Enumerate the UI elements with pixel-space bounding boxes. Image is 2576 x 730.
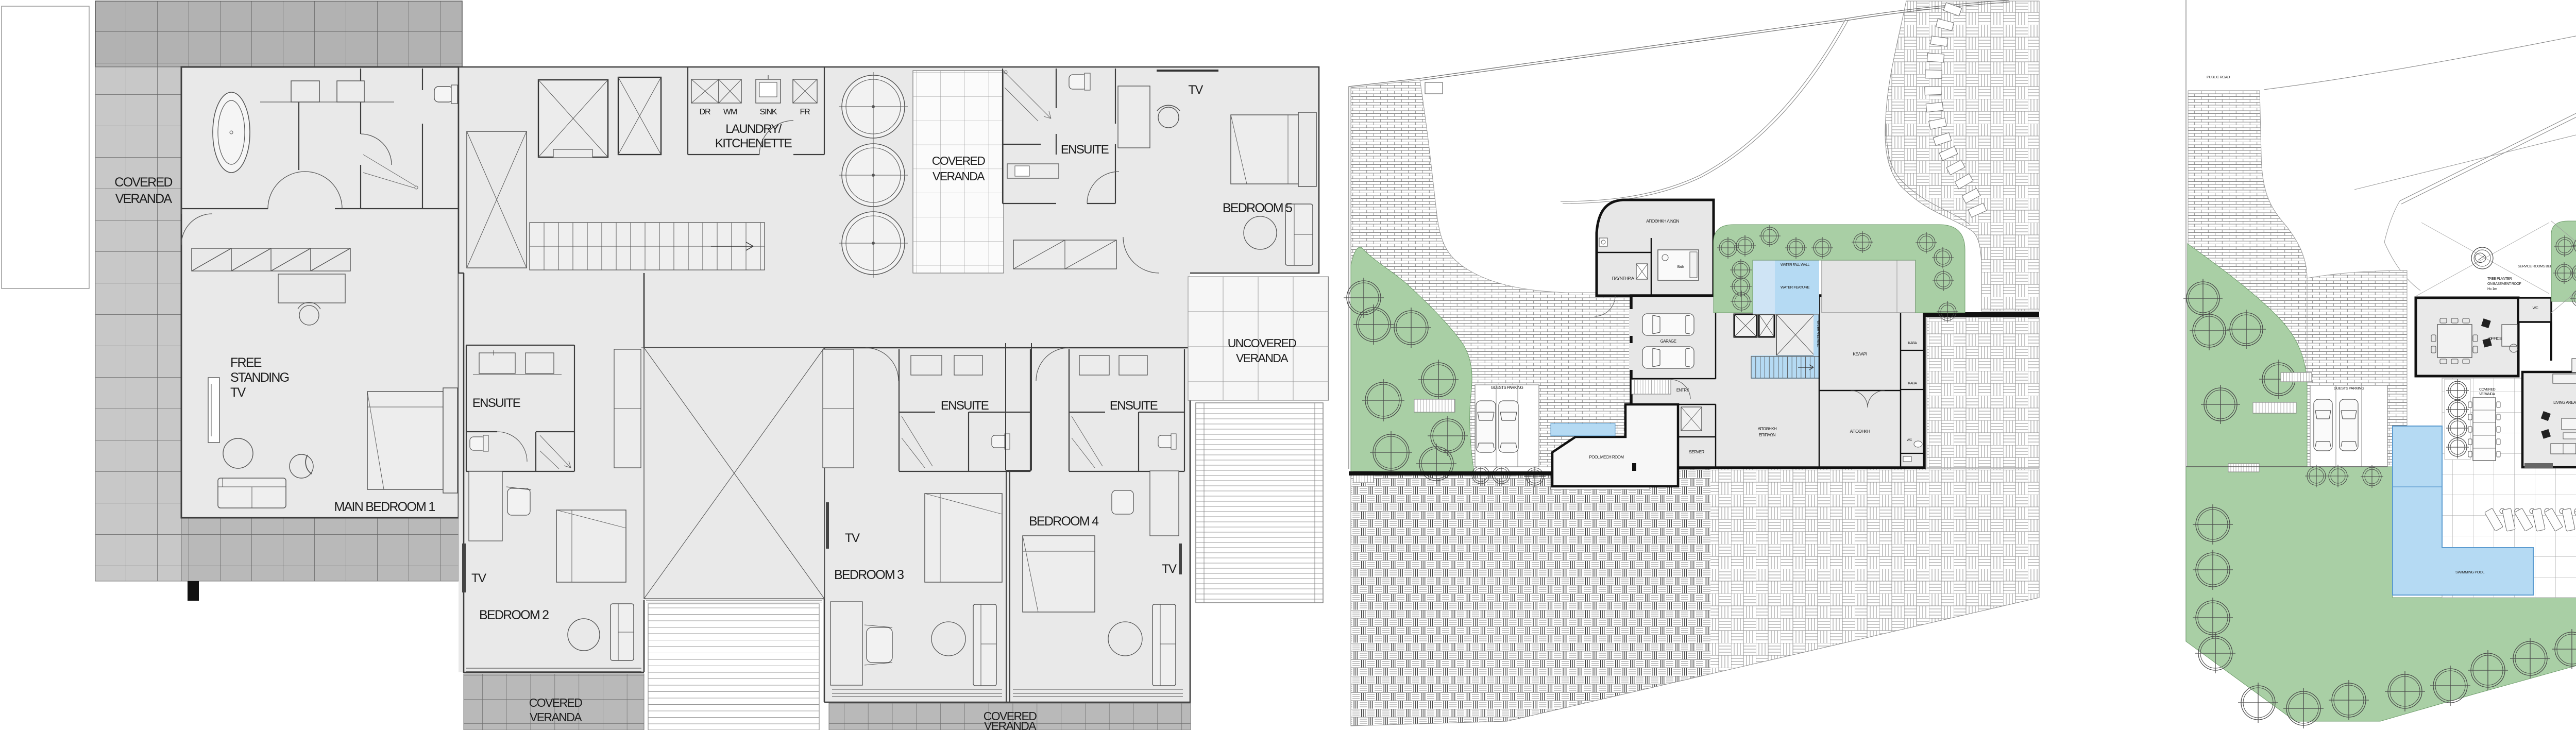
svg-text:SERVER: SERVER [1689,450,1704,454]
svg-text:POOL MECH ROOM: POOL MECH ROOM [1589,455,1624,460]
svg-text:ENSUITE: ENSUITE [472,396,520,410]
svg-text:VERANDA: VERANDA [530,710,582,724]
svg-text:TV: TV [471,571,486,585]
svg-text:COVERED: COVERED [114,175,172,190]
svg-text:VERANDA: VERANDA [2479,393,2495,396]
svg-text:WM: WM [723,108,737,116]
svg-text:LIVING AREA: LIVING AREA [2553,400,2576,405]
svg-text:COVERED: COVERED [529,696,582,709]
svg-text:ON BASEMENT ROOF: ON BASEMENT ROOF [2487,282,2521,286]
svg-text:SINK: SINK [760,108,777,116]
svg-text:GUESTS PARKING: GUESTS PARKING [2334,386,2364,391]
svg-text:UNCOVERED: UNCOVERED [1228,336,1296,350]
svg-text:BEDROOM 4: BEDROOM 4 [1029,514,1099,529]
svg-text:ΚΕΛΑΡΙ: ΚΕΛΑΡΙ [1853,351,1867,356]
svg-text:GARAGE: GARAGE [1660,339,1676,344]
svg-text:ENSUITE: ENSUITE [1110,399,1158,413]
svg-text:COVERED: COVERED [932,154,985,167]
svg-text:ENSUITE: ENSUITE [1061,143,1109,157]
svg-text:COVERED: COVERED [2479,388,2496,392]
svg-text:MAIN BEDROOM 1: MAIN BEDROOM 1 [334,500,435,514]
svg-text:ΚΑΒΑ: ΚΑΒΑ [1908,382,1918,385]
svg-text:ΑΠΟΘΗΚΗ ΛΙΝΩΝ: ΑΠΟΘΗΚΗ ΛΙΝΩΝ [1646,218,1679,224]
svg-text:ΑΠΟΘΗΚΗ: ΑΠΟΘΗΚΗ [1850,429,1870,434]
svg-text:KITCHENETTE: KITCHENETTE [715,137,792,150]
svg-text:VERANDA: VERANDA [1236,351,1289,365]
svg-text:FR: FR [800,108,810,116]
svg-text:OFFICE: OFFICE [2488,336,2502,341]
svg-text:WATER FALL WALL: WATER FALL WALL [1781,263,1810,267]
svg-text:BEDROOM 3: BEDROOM 3 [834,568,904,582]
svg-text:ΕΠΙΠΛΩΝ: ΕΠΙΠΛΩΝ [1759,433,1776,437]
svg-text:ΚΑΒΑ: ΚΑΒΑ [1908,342,1918,345]
svg-text:TREE PLANTER: TREE PLANTER [2487,277,2512,281]
svg-text:TV: TV [845,531,860,545]
svg-text:SWIMMING POOL: SWIMMING POOL [2455,570,2484,574]
svg-text:ΑΠΟΘΗΚΗ: ΑΠΟΘΗΚΗ [1758,427,1777,431]
svg-text:TV: TV [1188,83,1203,97]
svg-text:TV: TV [230,385,246,400]
svg-text:WATER FEATURE: WATER FEATURE [1781,285,1809,290]
svg-text:ΠΛΥΝΤΗΡΙΑ: ΠΛΥΝΤΗΡΙΑ [1612,276,1635,281]
svg-text:STANDING: STANDING [230,370,289,385]
svg-text:Bath: Bath [1677,265,1684,269]
svg-text:H= 1m: H= 1m [2487,287,2497,291]
svg-text:BEDROOM 2: BEDROOM 2 [479,608,549,622]
svg-text:GUESTS PARKING: GUESTS PARKING [1491,385,1523,390]
svg-text:VERANDA: VERANDA [984,719,1037,730]
svg-text:LAUNDRY/: LAUNDRY/ [725,122,782,136]
svg-text:WC: WC [2533,307,2538,310]
svg-text:FREE: FREE [230,355,262,370]
svg-text:VERANDA: VERANDA [933,169,985,183]
svg-text:PUBLIC ROAD: PUBLIC ROAD [2207,75,2230,79]
svg-text:TV: TV [1162,562,1177,576]
svg-text:WC: WC [1907,438,1912,442]
svg-text:BEDROOM 5: BEDROOM 5 [1223,201,1292,215]
svg-text:VERANDA: VERANDA [115,192,173,206]
svg-text:ENSUITE: ENSUITE [941,399,989,413]
svg-text:DR: DR [700,108,710,116]
